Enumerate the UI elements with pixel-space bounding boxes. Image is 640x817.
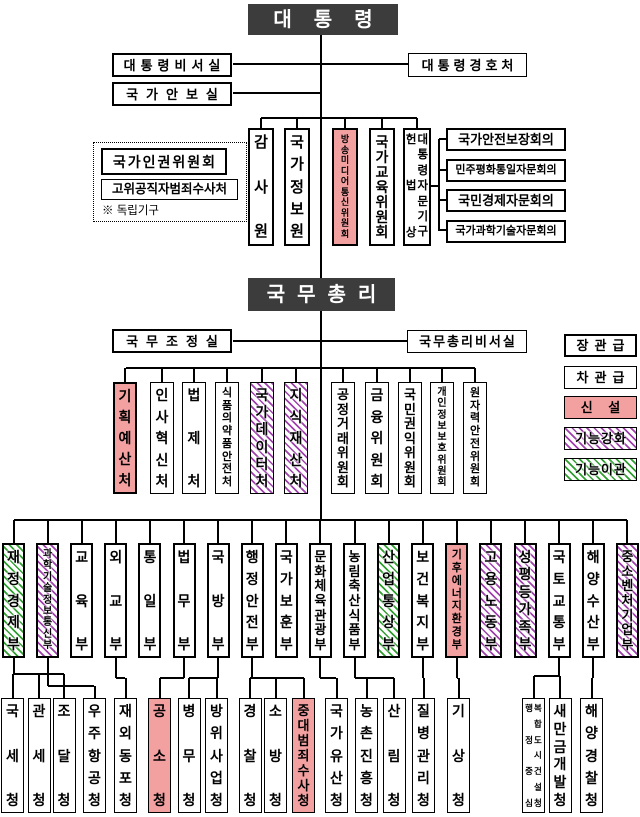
agency-box-char: 새: [554, 704, 567, 718]
agency-box-char: 달: [58, 749, 71, 763]
agency-box: 조달청: [53, 698, 76, 813]
ministry-box-char: 노: [484, 594, 497, 608]
pm-agency-box-char: 예: [119, 431, 132, 445]
pm-agency-box: 지식재산처: [284, 382, 308, 494]
president-direct-box-char: 원: [254, 224, 268, 239]
connector-line: [193, 368, 195, 382]
agency-box-text-column: 관세청: [33, 699, 46, 812]
pm-agency-box-char: 품: [222, 401, 232, 412]
connector-line: [422, 658, 424, 678]
agency-box: 소방청: [264, 698, 287, 813]
connector-line: [422, 520, 424, 543]
ministry-box-char: 너: [452, 589, 462, 600]
agency-box-char: 정: [525, 736, 533, 745]
ministry-box-char: 교: [109, 594, 122, 608]
connector-line: [38, 674, 40, 698]
ministry-box-char: 등: [519, 585, 532, 599]
agency-box-char: 청: [585, 793, 598, 807]
president-direct-box-char: 원: [290, 224, 304, 239]
connector-line: [183, 520, 185, 543]
pm-agency-box-char: 데: [256, 422, 269, 436]
ministry-box-char: 부: [7, 637, 20, 651]
connector-line: [344, 118, 346, 128]
agency-box-char: 청: [298, 794, 310, 807]
connector-line: [161, 368, 163, 382]
pm-agency-box-char: 국: [404, 388, 416, 401]
ministry-box-char: 품: [349, 623, 361, 636]
ministry-box: 보건복지부: [411, 543, 434, 658]
agency-box-text-column: 병무청: [183, 699, 196, 812]
agency-box-char: 상: [452, 749, 465, 763]
agency-box-char: 위: [210, 726, 223, 740]
ministry-box-char: 보: [280, 594, 293, 608]
connector-line: [149, 520, 151, 543]
connector-line: [381, 118, 383, 128]
pm-agency-box-char: 거: [337, 417, 349, 430]
agency-box-char: 찰: [585, 771, 598, 785]
connector-line: [474, 368, 476, 382]
agency-box-char: 양: [585, 726, 598, 740]
pm-agency-box-char: 익: [404, 432, 416, 445]
ministry-box-char: 소: [621, 565, 633, 578]
ministry-box: 과학기술정보통신부: [36, 543, 59, 658]
president-direct-box-char: 사: [254, 180, 268, 195]
advisory-council-box: 국가과학기술자문회의: [446, 220, 566, 243]
human-rights-commission-label: 국가인권위원회: [113, 155, 217, 169]
agency-box-char: 관: [417, 749, 430, 763]
ministry-box-char: 부: [280, 637, 293, 651]
ministry-box: 통일부: [138, 543, 161, 658]
pm-agency-box-char: 민: [404, 403, 416, 416]
connector-line: [320, 677, 336, 679]
pm-agency-box-char: 호: [437, 444, 446, 454]
pm-agency-box-char: 신: [156, 453, 169, 467]
connector-line: [533, 676, 535, 698]
advisory-council-box: 국민경제자문회의: [446, 189, 566, 212]
ministry-box-char: 부: [314, 638, 326, 651]
ministry-box-char: 안: [246, 594, 259, 608]
ministry-box-char: 재: [7, 550, 20, 564]
ministry-box-char: 통: [382, 594, 395, 608]
agency-box-char: 경: [585, 749, 598, 763]
agency-box-char: 수: [298, 764, 310, 777]
ministry-box-text-column: 통일부: [143, 545, 156, 656]
agency-box-char: 재: [119, 704, 132, 718]
pm-agency-box-char: 재: [290, 431, 303, 445]
president-direct-box: 국가교육위원회: [369, 128, 395, 246]
president-direct-box-char: 육: [376, 180, 389, 194]
agency-box-text-column: 산림청: [388, 699, 401, 812]
pm-agency-box-char: 원: [404, 461, 416, 474]
legend-item: 차관급: [564, 366, 637, 389]
ministry-box-char: 학: [43, 561, 52, 571]
president-direct-box-char: 송: [341, 146, 349, 155]
legend-item-label: 장관급: [577, 339, 631, 352]
connector-line: [558, 520, 560, 543]
ministry-box-char: 육: [75, 594, 88, 608]
agency-box: 산림청: [383, 698, 406, 813]
connector-line: [439, 199, 446, 201]
president-direct-box-text-column: 방송미디어통신위원회: [341, 130, 349, 244]
president-direct-box-char: 문: [418, 197, 429, 209]
president-direct-box-char: 감: [254, 135, 268, 150]
pm-agency-box-char: 가: [256, 405, 269, 419]
agency-box-char: 청: [417, 793, 430, 807]
ministry-box-text-column: 성평등가족부: [519, 545, 532, 656]
ministry-box-char: 업: [382, 572, 395, 586]
ministry-box-char: 교: [75, 550, 88, 564]
president-direct-box-char: 대: [418, 135, 429, 147]
agency-box-text-column: 중대범죄수사청: [298, 699, 310, 812]
connector-line: [250, 677, 304, 679]
legend-item-label: 기능이관: [575, 463, 627, 476]
connector-line: [48, 685, 95, 687]
president-title-box: 대통령: [248, 4, 398, 35]
pm-secretariat-label: 국무총리비서실: [419, 335, 517, 348]
pm-agency-box: 금융위원회: [365, 382, 389, 494]
agency-box-char: 세: [33, 749, 46, 763]
agency-box-text-column: 기상청: [452, 699, 465, 812]
agency-box-char: 청: [330, 793, 343, 807]
connector-line: [251, 658, 253, 678]
agency-box-text-column: 소방청: [269, 699, 282, 812]
ministry-box-text-column: 과학기술정보통신부: [43, 545, 52, 656]
pm-agency-box-char: 인: [437, 399, 446, 409]
legend-item: 신 설: [564, 396, 637, 419]
agency-box-char: 설: [534, 783, 542, 792]
ministry-box-char: 양: [587, 572, 600, 586]
agency-box-char: 건: [534, 767, 542, 776]
agency-box-text-column: 복합도시건설청: [534, 699, 542, 812]
ministry-box-char: 국: [280, 550, 293, 564]
agency-box-char: 세: [6, 749, 19, 763]
president-direct-box-char: 통: [341, 188, 349, 197]
president-direct-box-char: 상: [406, 228, 417, 240]
pm-agency-box-text-column: 법제처: [188, 383, 201, 493]
pm-agency-box-char: 자: [470, 401, 480, 412]
pm-agency-box-char: 회: [470, 477, 480, 488]
agency-box-char: 만: [554, 722, 567, 736]
pm-agency-box: 개인정보보호위원회: [430, 382, 454, 494]
agency-box-char: 개: [554, 757, 567, 771]
connector-line: [354, 658, 356, 678]
prime-minister-title-box: 국무총리: [248, 278, 395, 311]
ministry-box-char: 법: [178, 550, 191, 564]
ministry-box-char: 부: [587, 637, 600, 651]
president-direct-box-char: 가: [376, 150, 389, 164]
human-rights-commission-box: 국가인권위원회: [101, 148, 227, 175]
pm-agency-box-char: 위: [470, 452, 480, 463]
ministry-box: 기후에너지환경부: [445, 543, 468, 658]
connector-line: [438, 139, 440, 231]
ministry-box-char: 족: [519, 620, 532, 634]
agency-box-char: 심: [525, 799, 533, 808]
agency-box-char: 시: [534, 751, 542, 760]
president-direct-box-char: 보: [290, 202, 304, 217]
agency-box-char: 범: [298, 734, 310, 747]
agency-box: 공소청: [148, 698, 171, 813]
pm-agency-box-char: 원: [337, 461, 349, 474]
legend-item: 장관급: [564, 334, 637, 357]
pm-agency-box-char: 위: [337, 446, 349, 459]
ministry-box-char: 광: [314, 623, 326, 636]
ministry-box-char: 부: [246, 637, 259, 651]
pm-agency-box-text-column: 개인정보보호위원회: [437, 383, 446, 493]
ministry-box-char: 정: [246, 572, 259, 586]
agency-box-char: 병: [183, 704, 196, 718]
advisory-council-box: 민주평화통일자문회의: [446, 159, 566, 182]
ministry-box-char: 부: [75, 637, 88, 651]
pm-agency-box-char: 처: [290, 474, 303, 488]
ministry-box-char: 산: [587, 615, 600, 629]
president-direct-box-char: 신: [341, 198, 349, 207]
pm-agency-box: 기획예산처: [113, 382, 137, 494]
presidential-security-service-box: 대통령경호처: [408, 53, 527, 77]
ministry-box: 재정경제부: [2, 543, 25, 658]
agency-box-char: 금: [554, 740, 567, 754]
agency-box-char: 청: [554, 793, 567, 807]
ministry-box-text-column: 외교부: [109, 545, 122, 656]
agency-box-text-column: 농촌진흥청: [360, 699, 373, 812]
ministry-box-char: 부: [553, 637, 566, 651]
advisory-council-box-label: 국가안전보장회의: [458, 133, 554, 146]
president-direct-box-char: 법: [406, 181, 417, 193]
pm-agency-box-text-column: 국가데이터처: [256, 383, 269, 493]
pm-agency-box: 국민권익위원회: [398, 382, 422, 494]
pm-agency-box-char: 원: [470, 388, 480, 399]
agency-box-char: 항: [88, 749, 101, 763]
agency-box-char: 소: [153, 749, 166, 763]
pm-agency-box-char: 처: [156, 474, 169, 488]
agency-box-char: 해: [585, 704, 598, 718]
ministry-box-char: 성: [519, 550, 532, 564]
agency-box: 기상청: [447, 698, 470, 813]
agency-box-char: 우: [88, 704, 101, 718]
pm-agency-box: 인사혁신처: [150, 382, 174, 494]
independent-note: ※ 독립기구: [102, 202, 159, 218]
pm-agency-box: 원자력안전위원회: [463, 382, 487, 494]
ministry-box: 고용노동부: [479, 543, 502, 658]
pm-agency-box-text-column: 식품의약품안전처: [222, 383, 232, 493]
ministry-box-char: 환: [452, 614, 462, 625]
agency-box-char: 국: [6, 704, 19, 718]
agency-box: 농촌진흥청: [355, 698, 378, 813]
prime-minister-title: 국무총리: [267, 285, 389, 305]
ministry-box-text-column: 농림축산식품부: [349, 545, 361, 656]
ministry-box-char: 식: [349, 609, 361, 622]
agency-box-char: 리: [417, 771, 430, 785]
ministry-box-char: 부: [416, 637, 429, 651]
president-direct-box-char: 원: [376, 210, 389, 224]
advisory-council-box-label: 국가과학기술자문회의: [455, 226, 556, 237]
pm-agency-box: 법제처: [182, 382, 206, 494]
president-direct-box-text-column: 헌법상: [406, 130, 417, 244]
ministry-box-char: 벤: [621, 579, 633, 592]
connector-line: [388, 520, 390, 543]
agency-box-char: 주: [88, 726, 101, 740]
president-direct-box-char: 디: [341, 167, 349, 176]
ministry-box: 국가보훈부: [275, 543, 298, 658]
agency-box-char: 청: [119, 793, 132, 807]
agency-box-char: 외: [119, 726, 132, 740]
legend-item-label: 차관급: [577, 371, 631, 384]
ministry-box-char: 복: [416, 594, 429, 608]
presidential-secretariat-label: 대통령비서실: [124, 59, 226, 72]
ministry-box-char: 가: [280, 572, 293, 586]
agency-box: 방위사업청: [205, 698, 228, 813]
ministry-box-char: 외: [109, 550, 122, 564]
ministry-box-char: 교: [553, 594, 566, 608]
agency-box-char: 관: [33, 704, 46, 718]
agency-box-char: 림: [388, 749, 401, 763]
ministry-box: 중소벤처기업부: [616, 543, 639, 658]
president-direct-box-char: 가: [290, 157, 304, 172]
agency-box-char: 찰: [244, 749, 257, 763]
independent-bodies-box: 국가인권위원회 고위공직자범죄수사처 ※ 독립기구: [93, 142, 247, 222]
advisory-council-box: 국가안전보장회의: [446, 128, 566, 151]
pm-agency-box-char: 금: [371, 388, 384, 402]
connector-line: [13, 520, 15, 543]
ministry-box-char: 산: [382, 550, 395, 564]
pm-agency-box-char: 획: [119, 410, 132, 424]
pm-agency-box-char: 약: [222, 426, 232, 437]
president-direct-box-char: 국: [376, 135, 389, 149]
connector-line: [303, 678, 305, 698]
agency-box-char: 중: [525, 767, 533, 776]
agency-box-char: 소: [269, 704, 282, 718]
president-direct-box-char: 방: [341, 135, 349, 144]
agency-box-char: 방: [269, 749, 282, 763]
connector-line: [81, 520, 83, 543]
ministry-box: 성평등가족부: [514, 543, 537, 658]
policy-coordination-label: 국무조정실: [126, 335, 226, 348]
ministry-box-char: 고: [484, 550, 497, 564]
pm-agency-box-char: 터: [256, 457, 269, 471]
agency-box: 행정중심복합도시건설청: [522, 698, 545, 813]
ministry-box-char: 상: [382, 615, 395, 629]
ministry-box-char: 과: [43, 550, 52, 560]
agency-box-char: 도: [534, 736, 542, 745]
ministry-box-char: 육: [314, 594, 326, 607]
president-direct-box-char: 미: [341, 156, 349, 165]
connector-line: [336, 678, 338, 698]
pm-agency-box-char: 권: [404, 417, 416, 430]
pm-agency-box-text-column: 기획예산처: [119, 384, 132, 492]
pm-agency-box-char: 정: [437, 411, 446, 421]
connector-line: [285, 520, 287, 543]
president-title: 대통령: [273, 10, 394, 30]
agency-box: 경찰청: [239, 698, 262, 813]
ministry-box-char: 부: [484, 637, 497, 651]
pm-agency-box-char: 회: [404, 475, 416, 488]
president-direct-box-char: 헌: [406, 135, 417, 147]
pm-agency-box-text-column: 금융위원회: [371, 383, 384, 493]
ministry-box-char: 해: [587, 550, 600, 564]
ministry-box-text-column: 보건복지부: [416, 545, 429, 656]
ministry-box-char: 부: [143, 637, 156, 651]
agency-box-text-column: 방위사업청: [210, 699, 223, 812]
connector-line: [439, 138, 446, 140]
pm-agency-box-char: 전: [222, 464, 232, 475]
ministry-box: 외교부: [104, 543, 127, 658]
connector-line: [458, 678, 460, 698]
ministry-box: 문화체육관광부: [309, 543, 332, 658]
agency-box-text-column: 질병관리청: [417, 699, 430, 812]
pm-agency-box-char: 처: [188, 474, 201, 488]
president-direct-box-char: 원: [341, 219, 349, 228]
connector-line: [355, 677, 395, 679]
connector-line: [558, 658, 560, 676]
ministry-box-text-column: 문화체육관광부: [314, 545, 326, 656]
agency-box: 질병관리청: [412, 698, 435, 813]
agency-box-char: 방: [210, 704, 223, 718]
connector-line: [251, 520, 253, 543]
pm-agency-box-char: 의: [222, 413, 232, 424]
ministry-box-char: 건: [416, 572, 429, 586]
agency-box-text-column: 우주항공청: [88, 699, 101, 812]
agency-box-char: 촌: [360, 726, 373, 740]
national-security-office-box: 국가안보실: [112, 82, 232, 106]
ministry-box-char: 중: [621, 550, 633, 563]
pm-agency-box-char: 제: [188, 431, 201, 445]
pm-agency-box-char: 위: [437, 456, 446, 466]
agency-box-char: 청: [452, 793, 465, 807]
pm-agency-box-char: 산: [119, 452, 132, 466]
president-direct-box-char: 통: [418, 150, 429, 162]
connector-line: [296, 118, 298, 128]
connector-line: [592, 658, 594, 678]
connector-line: [342, 368, 344, 382]
pm-agency-box-char: 처: [119, 473, 132, 487]
pm-agency-box-char: 식: [290, 410, 303, 424]
pm-agency-box-char: 회: [437, 478, 446, 488]
ministry-box-char: 체: [314, 579, 326, 592]
connector-line: [416, 118, 418, 128]
ministry-box-char: 부: [178, 637, 191, 651]
connector-line: [115, 658, 117, 678]
connector-line: [124, 368, 126, 382]
pm-agency-box-char: 회: [371, 474, 384, 488]
ministry-box-char: 업: [621, 623, 633, 636]
connector-line: [12, 674, 14, 698]
ministry-box: 산업통상부: [377, 543, 400, 658]
pm-agency-box-char: 보: [437, 422, 446, 432]
agency-box-char: 진: [360, 749, 373, 763]
ministry-box-char: 토: [553, 572, 566, 586]
agency-box-char: 행: [525, 704, 533, 713]
pm-agency-box-char: 융: [371, 410, 384, 424]
agency-box-char: 복: [534, 704, 542, 713]
ministry-box: 행정안전부: [241, 543, 264, 658]
ministry-box-text-column: 국방부: [212, 545, 225, 656]
pm-agency-box: 공정거래위원회: [331, 382, 355, 494]
agency-box-char: 경: [244, 704, 257, 718]
agency-box: 재외동포청: [114, 698, 137, 813]
agency-box-char: 청: [360, 793, 373, 807]
agency-box-char: 산: [388, 704, 401, 718]
ministry-box-char: 보: [416, 550, 429, 564]
president-direct-box-char: 위: [341, 209, 349, 218]
agency-box-text-column: 공소청: [153, 699, 166, 812]
pm-agency-box-char: 국: [256, 388, 269, 402]
ministry-box-char: 신: [43, 630, 52, 640]
president-direct-box-text-column: 국가정보원: [290, 130, 304, 244]
pm-agency-box-char: 처: [222, 477, 232, 488]
ministry-box-char: 기: [621, 609, 633, 622]
connector-line: [319, 520, 321, 543]
connector-line: [456, 658, 458, 678]
agency-box-char: 발: [554, 775, 567, 789]
